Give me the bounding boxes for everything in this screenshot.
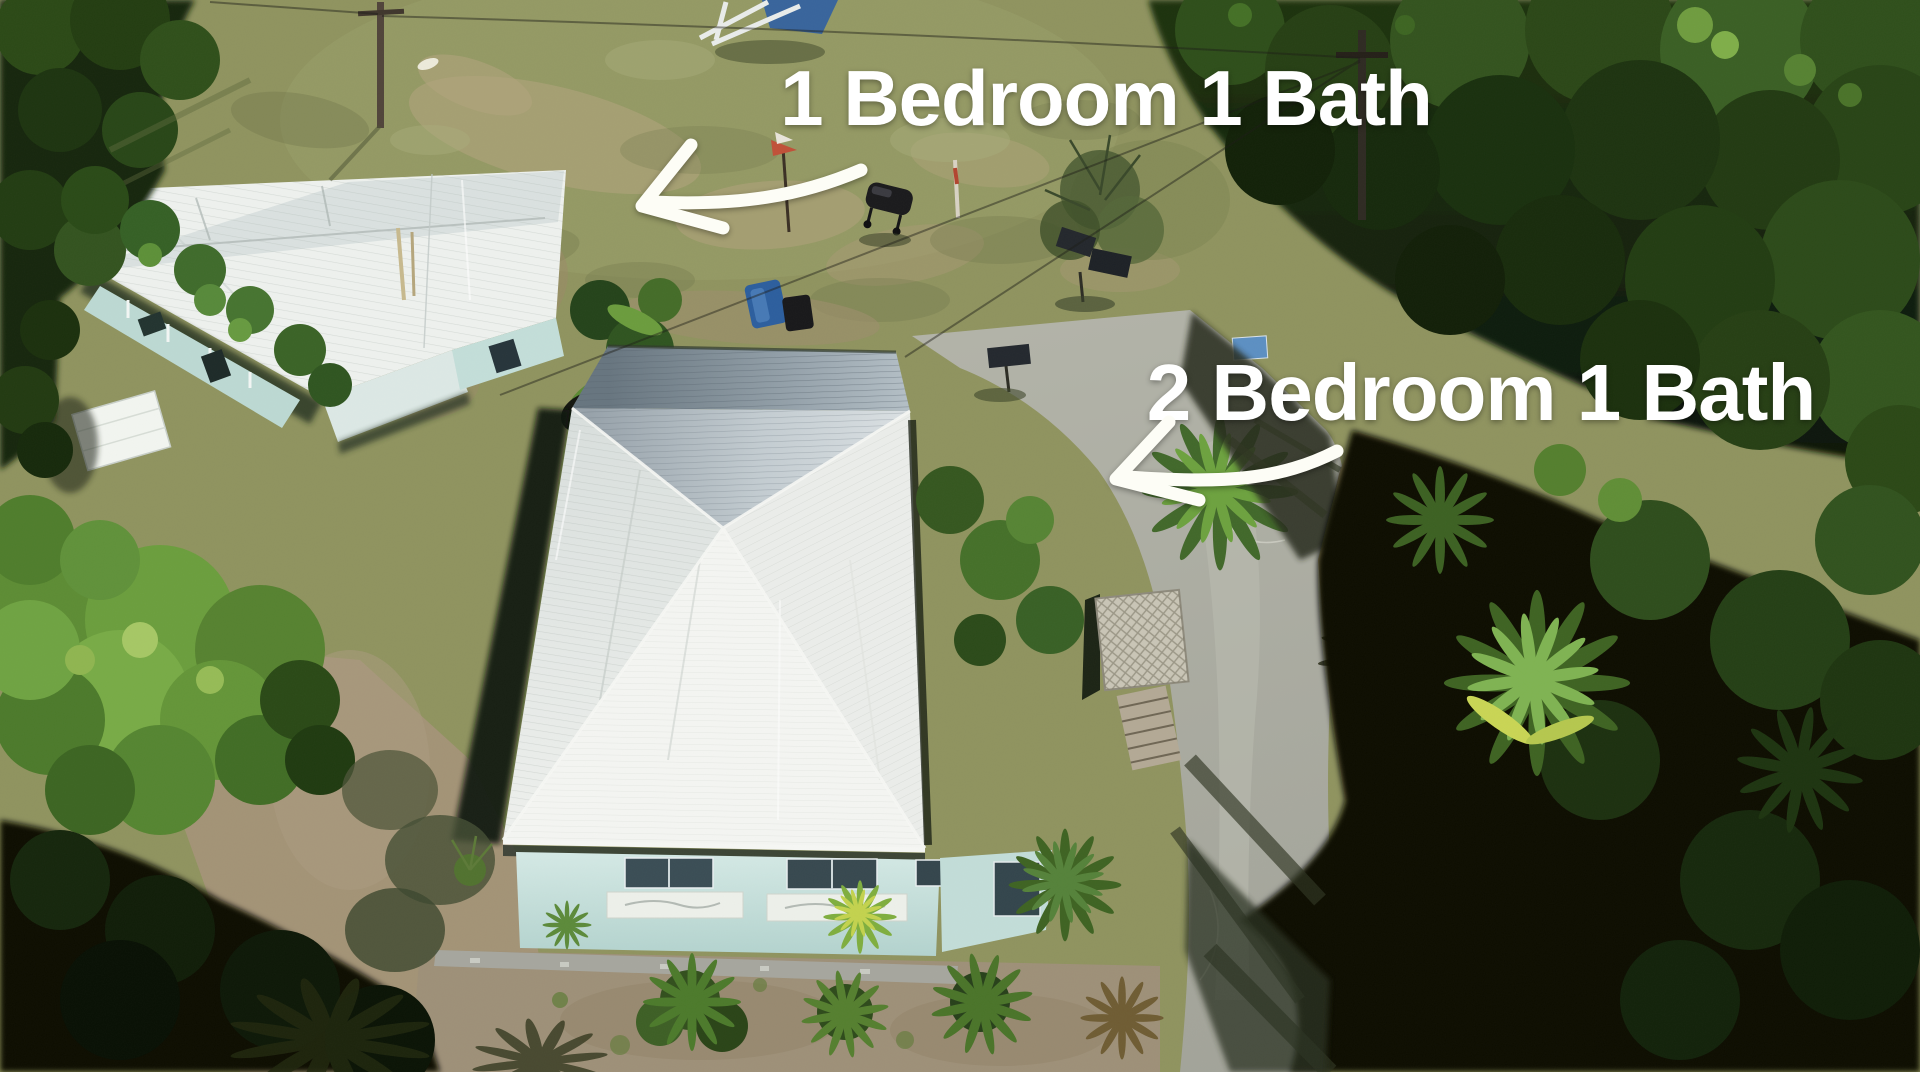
photo-grain xyxy=(0,0,1920,1072)
aerial-photo: 1 Bedroom 1 Bath 2 Bedroom 1 Bath xyxy=(0,0,1920,1072)
label-2-bedroom-1-bath: 2 Bedroom 1 Bath xyxy=(1147,348,1816,437)
label-1-bedroom-1-bath: 1 Bedroom 1 Bath xyxy=(780,54,1431,142)
